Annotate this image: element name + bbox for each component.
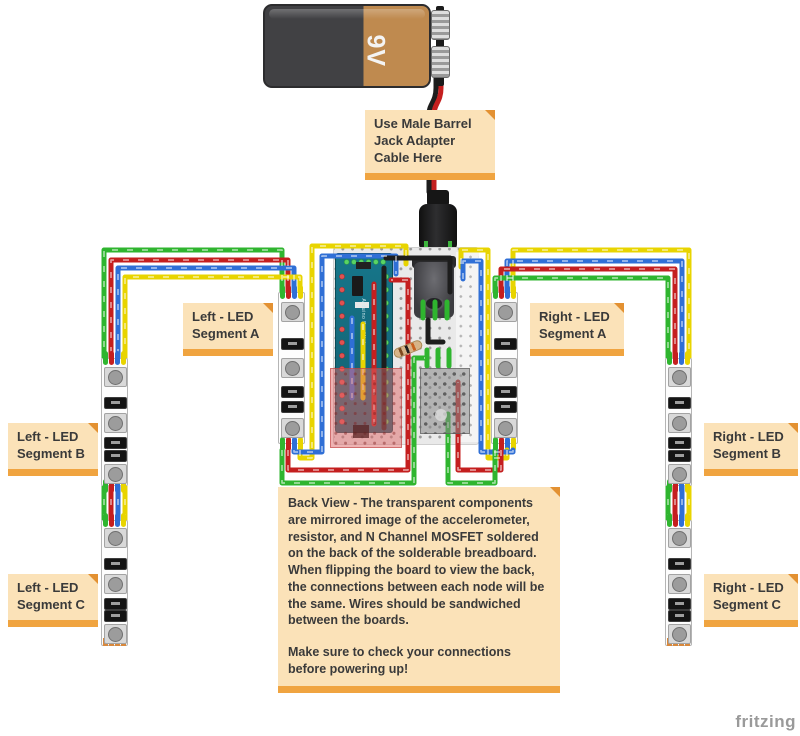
note-left-segment-a: Left - LED Segment A (183, 303, 273, 356)
accelerometer-chip (353, 425, 369, 438)
note-back-view-paragraph-1: Back View - The transparent components a… (288, 495, 550, 629)
note-right-segment-a: Right - LED Segment A (530, 303, 624, 356)
mosfet-mounting-hole (435, 409, 447, 421)
note-right-segment-b: Right - LED Segment B (704, 423, 798, 476)
note-left-segment-b: Left - LED Segment B (8, 423, 98, 476)
note-right-segment-c: Right - LED Segment C (704, 574, 798, 627)
note-left-a-text: Left - LED Segment A (192, 309, 264, 343)
note-barrel-jack: Use Male Barrel Jack Adapter Cable Here (365, 110, 495, 180)
fritzing-watermark: fritzing (735, 712, 796, 732)
note-right-b-text: Right - LED Segment B (713, 429, 789, 463)
note-right-c-text: Right - LED Segment C (713, 580, 789, 614)
accelerometer-mirrored-overlay (330, 368, 402, 448)
note-barrel-text: Use Male Barrel Jack Adapter Cable Here (374, 116, 486, 167)
note-right-a-text: Right - LED Segment A (539, 309, 615, 343)
note-left-b-text: Left - LED Segment B (17, 429, 89, 463)
note-left-segment-c: Left - LED Segment C (8, 574, 98, 627)
mosfet-mirrored-overlay (420, 368, 470, 434)
fritzing-diagram: 9V Arduino Pro Mini (0, 0, 800, 736)
note-back-view: Back View - The transparent components a… (278, 487, 560, 693)
note-left-c-text: Left - LED Segment C (17, 580, 89, 614)
note-back-view-paragraph-2: Make sure to check your connections befo… (288, 644, 550, 678)
wire-black-elbow (428, 320, 443, 342)
